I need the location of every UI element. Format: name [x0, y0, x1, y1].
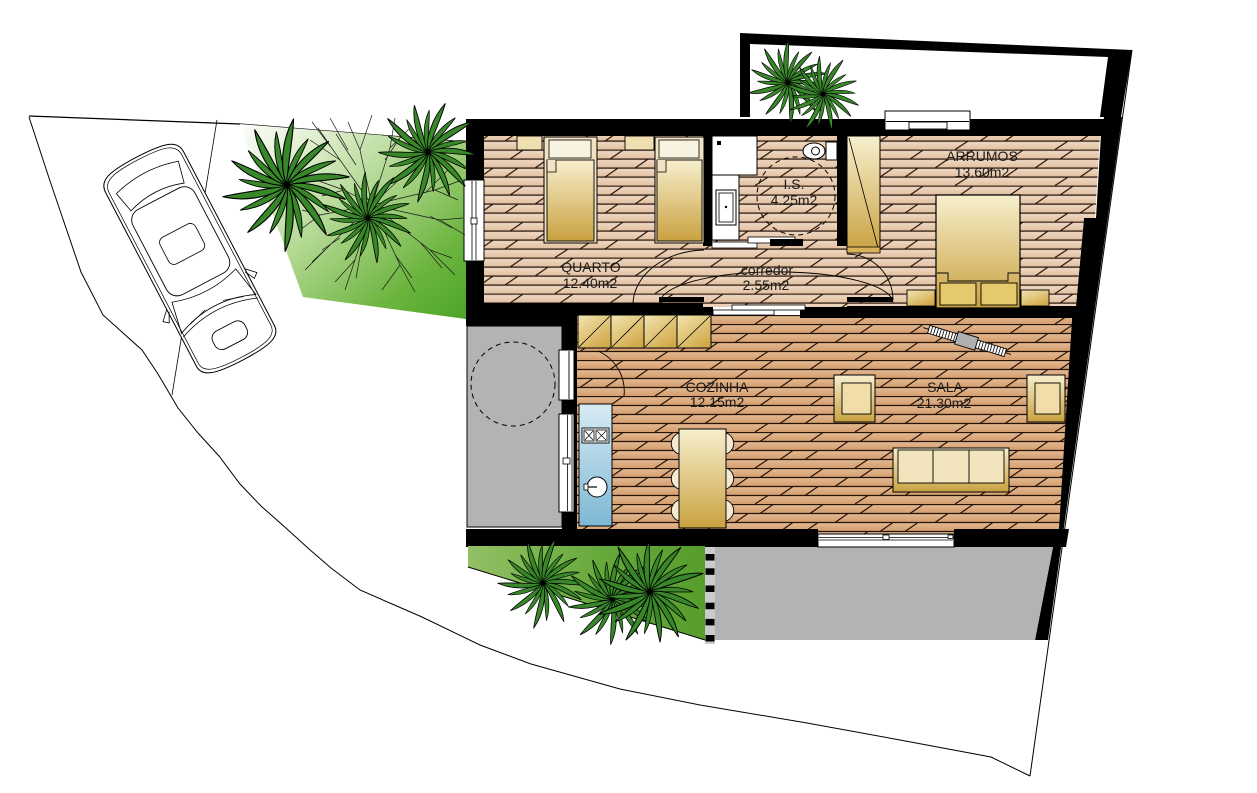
- svg-text:SALA: SALA: [927, 379, 963, 395]
- svg-text:corredor: corredor: [741, 262, 793, 278]
- svg-text:12.40m2: 12.40m2: [563, 275, 618, 291]
- svg-text:COZINHA: COZINHA: [686, 379, 750, 395]
- svg-text:QUARTO: QUARTO: [561, 259, 620, 275]
- svg-text:I.S.: I.S.: [783, 176, 804, 192]
- svg-text:ARRUMOS: ARRUMOS: [946, 148, 1018, 164]
- svg-text:12.15m2: 12.15m2: [690, 394, 745, 410]
- svg-text:21.30m2: 21.30m2: [917, 395, 972, 411]
- svg-text:13.60m2: 13.60m2: [955, 164, 1010, 180]
- svg-text:2.55m2: 2.55m2: [743, 277, 790, 293]
- svg-text:4.25m2: 4.25m2: [771, 192, 818, 208]
